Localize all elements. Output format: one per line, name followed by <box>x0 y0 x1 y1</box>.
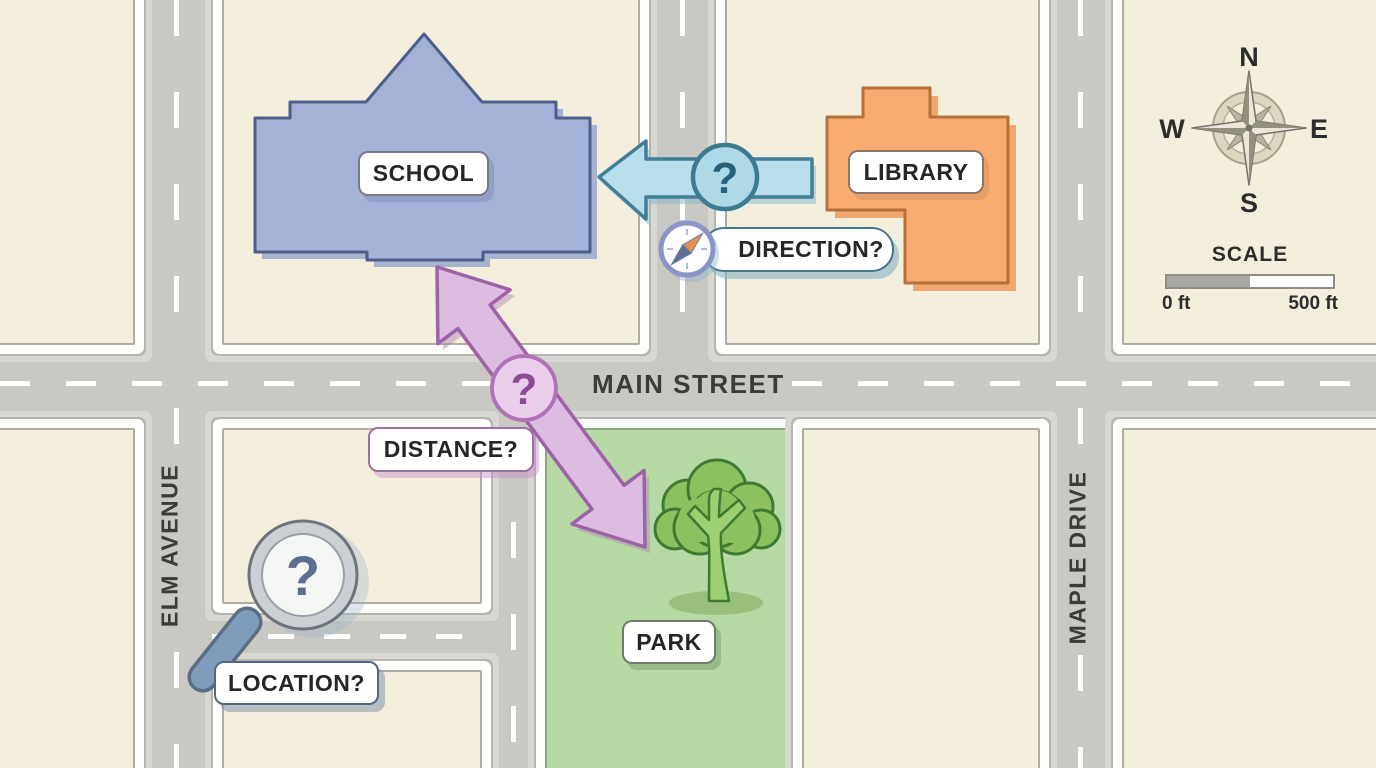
park-label: PARK <box>622 620 716 664</box>
library-label-text: LIBRARY <box>864 159 969 186</box>
compass-label-south: S <box>1240 188 1258 218</box>
location-label: LOCATION? <box>214 661 379 705</box>
compass-center-dot <box>1246 125 1253 132</box>
direction-arrow: ? <box>599 141 816 226</box>
compass-label-west: W <box>1159 114 1185 144</box>
compass-rose: N E S W <box>1159 42 1328 218</box>
compass-label-east: E <box>1310 114 1328 144</box>
direction-label-text: DIRECTION? <box>738 236 884 263</box>
distance-question-mark: ? <box>511 365 538 414</box>
magnifier-icon: ? <box>203 521 369 677</box>
direction-label: DIRECTION? <box>702 227 894 272</box>
school-building-body <box>255 34 590 260</box>
distance-arrow: ? <box>437 267 650 553</box>
park-label-text: PARK <box>636 629 701 656</box>
map-canvas: MAIN STREET ELM AVENUE MAPLE DRIVE <box>0 0 1376 768</box>
library-label: LIBRARY <box>848 150 984 194</box>
compass-label-north: N <box>1239 42 1259 72</box>
school-label-text: SCHOOL <box>373 160 474 187</box>
school-label: SCHOOL <box>358 151 489 196</box>
park-tree <box>655 460 780 615</box>
direction-question-mark: ? <box>712 154 739 203</box>
distance-label-text: DISTANCE? <box>384 436 518 463</box>
distance-label: DISTANCE? <box>368 427 534 472</box>
location-label-text: LOCATION? <box>228 670 365 697</box>
location-question-mark: ? <box>286 544 320 607</box>
